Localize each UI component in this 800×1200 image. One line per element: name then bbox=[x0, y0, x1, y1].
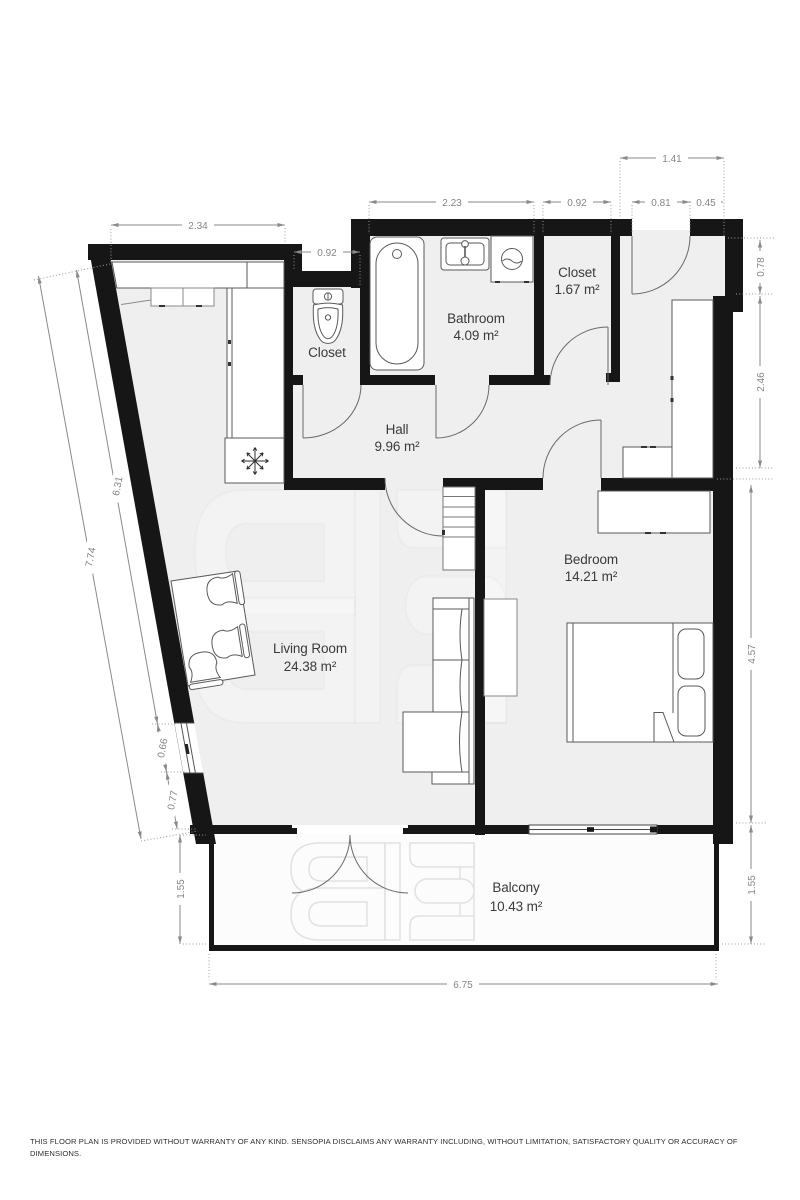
svg-text:Closet: Closet bbox=[558, 265, 596, 280]
svg-text:1.67 m²: 1.67 m² bbox=[554, 282, 600, 297]
svg-text:0.45: 0.45 bbox=[696, 198, 716, 209]
svg-text:Bedroom: Bedroom bbox=[564, 552, 618, 567]
svg-text:Closet: Closet bbox=[308, 345, 346, 360]
svg-text:1.41: 1.41 bbox=[662, 154, 682, 165]
svg-text:4.57: 4.57 bbox=[747, 644, 758, 664]
svg-text:0.92: 0.92 bbox=[567, 198, 587, 209]
svg-text:Living Room: Living Room bbox=[273, 641, 347, 656]
svg-text:0.78: 0.78 bbox=[756, 257, 767, 277]
svg-text:6.75: 6.75 bbox=[453, 980, 473, 991]
svg-text:0.66: 0.66 bbox=[156, 737, 171, 759]
svg-text:0.92: 0.92 bbox=[317, 248, 337, 259]
svg-text:0.77: 0.77 bbox=[166, 789, 181, 811]
svg-text:7.74: 7.74 bbox=[84, 546, 99, 568]
svg-text:4.09 m²: 4.09 m² bbox=[453, 328, 499, 343]
svg-text:1.55: 1.55 bbox=[747, 875, 758, 895]
svg-text:14.21 m²: 14.21 m² bbox=[565, 569, 618, 584]
svg-text:2.34: 2.34 bbox=[188, 221, 208, 232]
svg-text:9.96 m²: 9.96 m² bbox=[374, 439, 420, 454]
svg-text:6.31: 6.31 bbox=[111, 475, 126, 497]
svg-text:2.46: 2.46 bbox=[756, 372, 767, 392]
svg-text:Balcony: Balcony bbox=[492, 880, 540, 895]
svg-text:0.81: 0.81 bbox=[651, 198, 671, 209]
svg-text:Bathroom: Bathroom bbox=[447, 311, 505, 326]
svg-text:2.23: 2.23 bbox=[442, 198, 462, 209]
svg-text:1.55: 1.55 bbox=[176, 879, 187, 899]
svg-text:10.43 m²: 10.43 m² bbox=[490, 899, 543, 914]
svg-text:24.38 m²: 24.38 m² bbox=[284, 659, 337, 674]
svg-text:Hall: Hall bbox=[386, 422, 409, 437]
